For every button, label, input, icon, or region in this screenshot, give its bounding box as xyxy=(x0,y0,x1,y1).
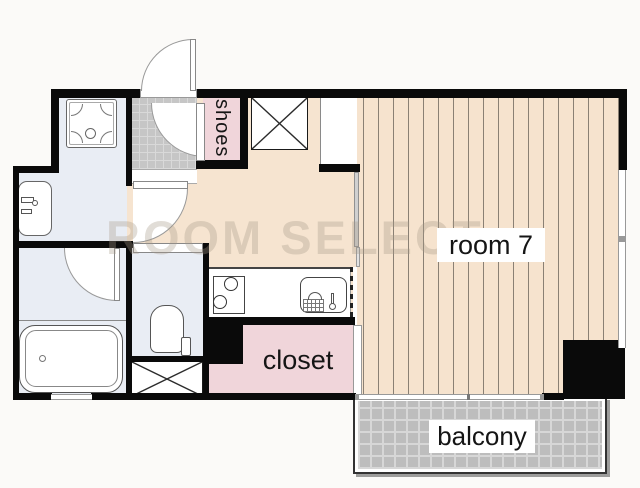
wall xyxy=(619,98,627,170)
vanity-knob xyxy=(32,200,38,206)
window-frame-cap xyxy=(540,394,544,400)
wall-block xyxy=(208,317,243,364)
x-mark-icon xyxy=(252,98,307,149)
closet-door-panel xyxy=(353,325,362,395)
wall xyxy=(126,89,132,186)
toilet-tank xyxy=(181,337,191,356)
entry-door-leaf xyxy=(190,39,196,91)
window-center-mullion xyxy=(467,394,470,400)
void-space xyxy=(320,97,357,165)
bathtub-drain xyxy=(39,355,46,362)
service-space-box xyxy=(131,361,203,397)
wall xyxy=(542,393,564,400)
pan-drain xyxy=(85,128,96,139)
entry-door-swing xyxy=(141,39,193,91)
window-frame-cap xyxy=(355,394,359,400)
sink-basin-arc xyxy=(308,292,322,300)
wall xyxy=(51,89,59,173)
sink-drain-rack xyxy=(303,299,324,312)
wall xyxy=(13,393,52,400)
wall xyxy=(13,166,59,173)
pillar xyxy=(563,340,625,399)
wall xyxy=(131,356,203,362)
wall xyxy=(240,89,248,169)
counter-open-boundary xyxy=(350,267,353,318)
wall xyxy=(319,164,360,172)
shoes-label: shoes xyxy=(203,95,240,161)
stove-burner xyxy=(224,277,238,291)
washroom-door-leaf xyxy=(133,181,188,189)
vanity-faucet xyxy=(21,209,32,214)
wall xyxy=(196,89,627,98)
x-mark-icon xyxy=(132,362,202,396)
wall xyxy=(196,160,248,169)
bathroom-divider-line xyxy=(18,320,127,321)
toilet-bowl xyxy=(150,305,184,353)
stove-burner xyxy=(213,295,227,309)
window-center-mullion xyxy=(618,236,626,242)
side-window xyxy=(618,170,626,348)
room-sliding-window xyxy=(355,394,544,400)
balcony-label: balcony xyxy=(429,420,535,453)
floor-plan: ROOM SELECT room 7 closet shoes balcony xyxy=(0,0,640,488)
entry-storage-box xyxy=(251,97,308,150)
room-label: room 7 xyxy=(437,228,545,262)
bathroom-window xyxy=(51,394,92,400)
closet-extension xyxy=(208,364,244,395)
wall xyxy=(13,166,19,400)
faucet-base xyxy=(329,303,336,310)
closet-label: closet xyxy=(243,325,353,395)
